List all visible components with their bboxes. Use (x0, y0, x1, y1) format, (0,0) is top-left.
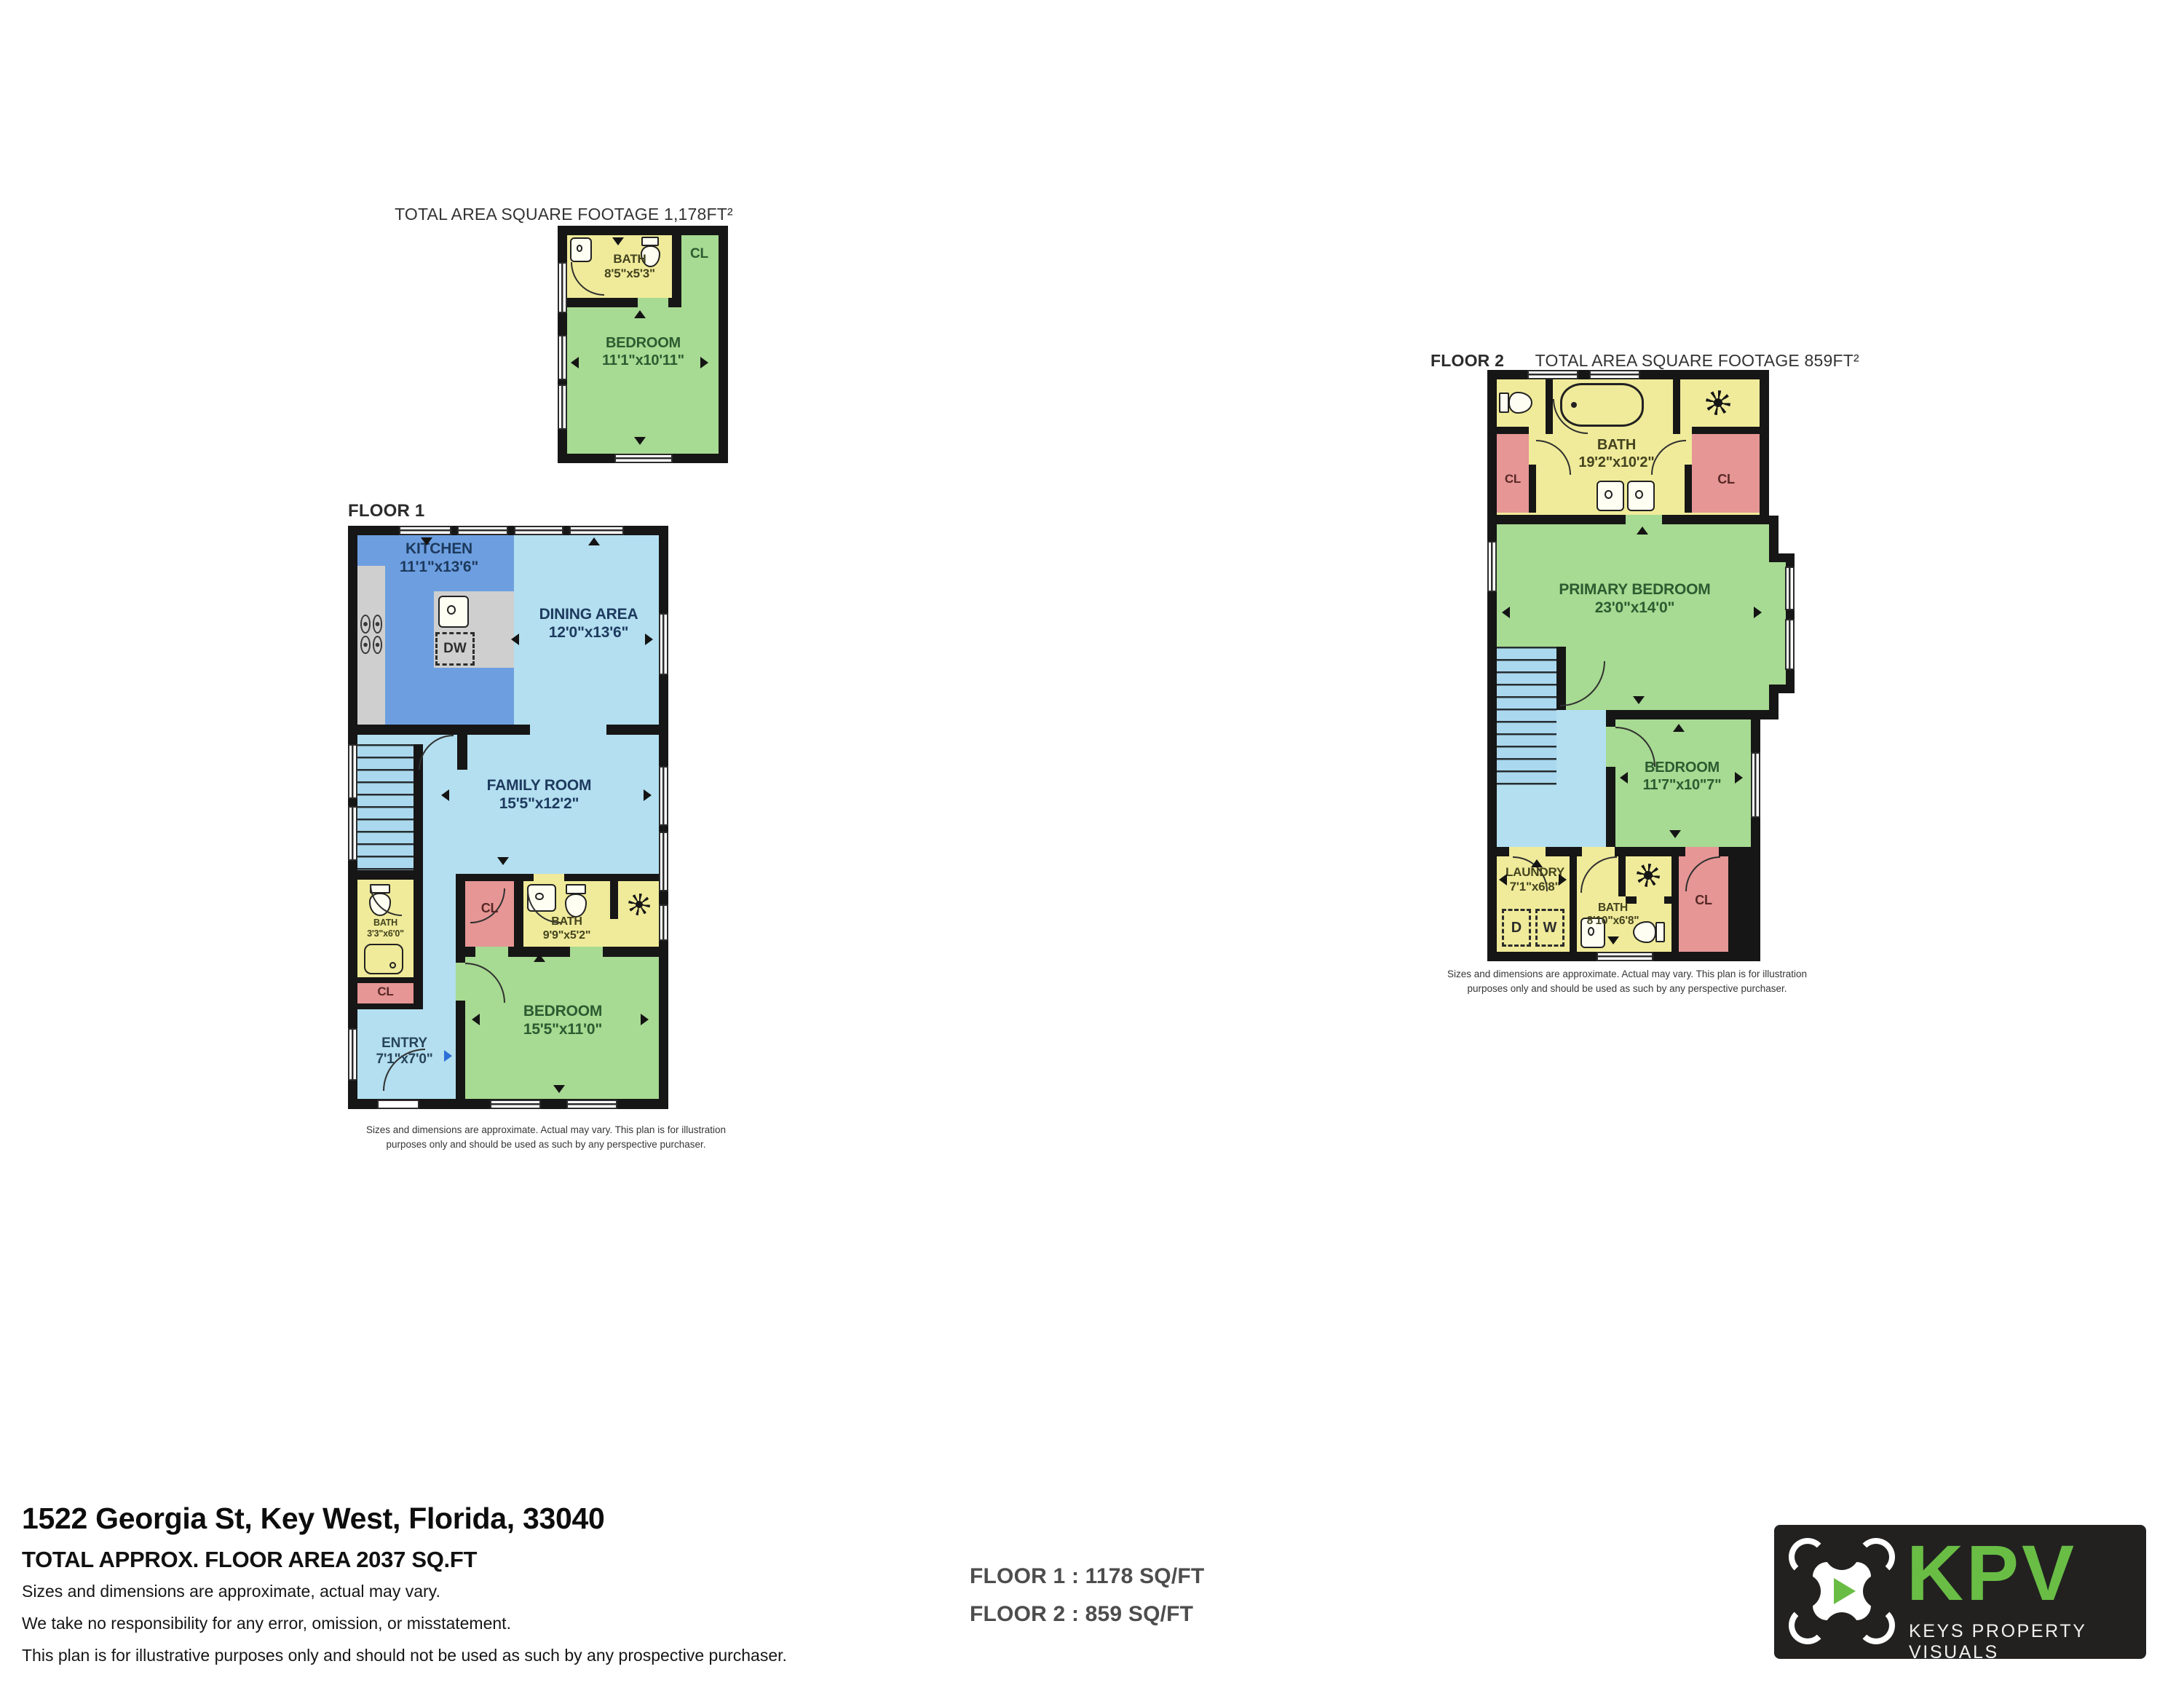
room-name: BATH (551, 915, 582, 929)
floor2-area-summary: FLOOR 2 : 859 SQ/FT (970, 1602, 1193, 1627)
dishwasher-box: DW (435, 632, 475, 666)
door-arrow-icon (634, 437, 646, 445)
door-arrow-icon (700, 357, 708, 368)
drone-body-notch (1863, 1574, 1898, 1609)
door-arrow-icon (1673, 724, 1685, 732)
family-room-label: FAMILY ROOM 15'5"x12'2" (457, 777, 621, 813)
room-dims: 11'1"x10'11" (602, 352, 684, 370)
window (659, 613, 668, 675)
window (558, 262, 567, 313)
unit-bedroom-label: BEDROOM 11'1"x10'11" (579, 335, 707, 369)
window (659, 904, 668, 941)
ceiling-fan-icon (628, 894, 650, 915)
floorplan-sheet: { "palette": { "wall": "#161616", "bath_… (0, 0, 2184, 1688)
room-name: ENTRY (381, 1036, 427, 1052)
wall (348, 1003, 423, 1009)
wall (606, 725, 668, 735)
logo-abbr: KPV (1907, 1534, 2077, 1612)
drone-body-notch (1824, 1612, 1859, 1647)
primary-bump-area (1769, 562, 1786, 685)
door-opening (456, 963, 465, 1001)
room-dims: 8'10"x6'8" (1587, 915, 1639, 928)
door-opening (1685, 847, 1719, 856)
window (1487, 541, 1497, 592)
window (1785, 619, 1795, 670)
unit-closet-label: CL (680, 246, 719, 262)
window (457, 526, 508, 535)
rotor-icon (1789, 1606, 1827, 1644)
door-opening (1626, 515, 1662, 524)
room-name: CL (690, 246, 708, 262)
window (1751, 752, 1760, 818)
footer-note: Sizes and dimensions are approximate, ac… (22, 1582, 440, 1601)
wall (1497, 427, 1529, 434)
bath2-label: BATH 8'10"x6'8" (1575, 902, 1651, 928)
closet-bottom-label: CL (1679, 893, 1728, 908)
door-arrow-icon (588, 537, 600, 545)
door-arrow-icon (421, 537, 432, 545)
dining-label: DINING AREA 12'0"x13'6" (521, 606, 656, 642)
room-name: CL (1505, 472, 1521, 486)
dryer-box: D (1502, 909, 1531, 947)
bedroom-label: BEDROOM 15'5"x11'0" (486, 1003, 639, 1039)
sink-icon (1627, 481, 1655, 511)
wall (1692, 427, 1760, 434)
unit-bath-label: BATH 8'5"x5'3" (590, 252, 670, 281)
door-arrow-icon (441, 789, 449, 801)
room-dims: 11'7"x10"7" (1643, 777, 1722, 794)
drone-body-notch (1824, 1535, 1859, 1570)
door-opening (534, 874, 564, 881)
floor1-area-summary: FLOOR 1 : 1178 SQ/FT (970, 1564, 1204, 1589)
floor1-disclaimer: Sizes and dimensions are approximate. Ac… (335, 1123, 757, 1152)
sink-icon (1597, 481, 1624, 511)
total-floor-area: TOTAL APPROX. FLOOR AREA 2037 SQ.FT (22, 1547, 477, 1573)
door-arrow-icon (1559, 874, 1567, 886)
window (348, 744, 357, 799)
stairs (1497, 647, 1556, 785)
door-arrow-icon (1754, 607, 1762, 618)
room-dims: 15'5"x11'0" (523, 1021, 602, 1039)
door-arrow-icon (645, 634, 653, 645)
door-arrow-icon (612, 237, 624, 245)
toilet-icon (1499, 390, 1532, 415)
room-name: BEDROOM (523, 1003, 602, 1021)
ceiling-fan-icon (1637, 864, 1660, 887)
floor2-title-row: FLOOR 2 TOTAL AREA SQUARE FOOTAGE 859FT² (1431, 351, 1859, 371)
property-address: 1522 Georgia St, Key West, Florida, 3304… (22, 1502, 604, 1536)
door-arrow-icon (1669, 830, 1681, 838)
unit-plan-title: TOTAL AREA SQUARE FOOTAGE 1,178FT² (391, 205, 737, 224)
hallway-area (423, 874, 456, 1010)
window (566, 1100, 617, 1109)
window (1527, 370, 1578, 379)
disclaimer-line: purposes only and should be used as such… (1467, 983, 1787, 994)
door-arrow-icon (634, 310, 646, 318)
door-opening (638, 298, 668, 307)
closet-left-label: CL (1497, 472, 1529, 486)
door-arrow-icon (553, 1085, 565, 1093)
window (348, 1028, 357, 1081)
door-arrow-icon (1607, 936, 1619, 944)
door-arrow-icon (534, 954, 545, 962)
room-name: CL (1695, 893, 1712, 908)
door-arrow-icon (1531, 859, 1543, 867)
wall (348, 725, 417, 735)
door-opening (475, 947, 508, 957)
door-arrow-icon (1735, 772, 1743, 784)
door-arrow-icon (497, 857, 509, 865)
door-opening (570, 947, 603, 957)
door-opening (1582, 847, 1615, 856)
ceiling-fan-icon (1706, 390, 1730, 415)
room-dims: 8'5"x5'3" (604, 267, 655, 281)
door-arrow-icon (1499, 874, 1507, 886)
room-dims: 15'5"x12'2" (499, 795, 579, 813)
floor2-title: TOTAL AREA SQUARE FOOTAGE 859FT² (1535, 351, 1859, 370)
washer-box: W (1535, 909, 1564, 947)
disclaimer-line: Sizes and dimensions are approximate. Ac… (366, 1124, 726, 1135)
drone-body-notch (1786, 1574, 1821, 1609)
stairs (357, 744, 414, 870)
door-arrow-icon (1502, 607, 1510, 618)
drone-icon (1787, 1537, 1896, 1646)
window (659, 766, 668, 826)
room-dims: 11'1"x13'6" (400, 559, 478, 577)
door-opening (1509, 847, 1546, 856)
footer-note: This plan is for illustrative purposes o… (22, 1646, 787, 1665)
window (614, 454, 673, 463)
room-name: BATH (1598, 902, 1628, 915)
room-name: DINING AREA (539, 606, 638, 624)
toilet-icon (563, 884, 588, 918)
room-dims: 23'0"x14'0" (1595, 599, 1674, 618)
kitchen-label: KITCHEN 11'1"x13'6" (366, 540, 512, 577)
room-name: CL (1717, 472, 1735, 487)
floor1-plan: DW KITCHEN 11'1"x13'6" DINING AREA (348, 526, 668, 1109)
wall (457, 735, 467, 770)
window (1589, 370, 1640, 379)
window (348, 806, 357, 861)
room-name: LAUNDRY (1506, 865, 1564, 880)
window (1597, 952, 1653, 961)
door-arrow-icon (1620, 772, 1628, 784)
door-arrow-icon (1637, 526, 1648, 535)
floor2-disclaimer: Sizes and dimensions are approximate. Ac… (1423, 967, 1831, 996)
window (514, 526, 563, 535)
room-name: BEDROOM (1645, 760, 1720, 777)
primary-bedroom-label: PRIMARY BEDROOM 23'0"x14'0" (1542, 581, 1728, 618)
wall (1546, 379, 1553, 434)
unit-plan: BATH 8'5"x5'3" CL BEDROOM 11'1"x10'11" (558, 226, 728, 463)
room-dims: 19'2"x10'2" (1578, 454, 1654, 472)
bath-mid-label: BATH 9'9"x5'2" (523, 915, 610, 943)
floor1-label: FLOOR 1 (348, 501, 424, 521)
closet-mid-label: CL (465, 901, 514, 916)
disclaimer-line: Sizes and dimensions are approximate. Ac… (1447, 969, 1807, 979)
bedroom2-label: BEDROOM 11'7"x10"7" (1615, 760, 1749, 794)
open-passage (530, 725, 606, 735)
room-dims: 7'1"x7'0" (376, 1052, 432, 1068)
room-dims: 7'1"x6'8" (1510, 880, 1561, 894)
door-opening (610, 919, 618, 947)
window (399, 526, 451, 535)
wall (348, 977, 423, 983)
floor2-label: FLOOR 2 (1431, 351, 1504, 370)
door-arrow-icon (1633, 696, 1645, 704)
door-arrow-icon (644, 789, 652, 801)
wall (348, 870, 423, 880)
door-arrow-icon (511, 634, 519, 645)
dryer-label: D (1511, 920, 1522, 936)
floor2-plan: D W BATH 19'2"x10'2" CL CL PRIMARY BEDRO… (1487, 370, 1795, 961)
room-name: BATH (1597, 437, 1636, 454)
washer-label: W (1543, 920, 1557, 936)
window (1785, 567, 1795, 610)
window (659, 832, 668, 891)
bath-top-label: BATH 19'2"x10'2" (1553, 437, 1680, 471)
room-dims: 3'3"x6'0" (367, 928, 404, 939)
room-name: PRIMARY BEDROOM (1559, 581, 1710, 599)
door-arrow-icon (472, 1014, 480, 1025)
logo-name: KEYS PROPERTY VISUALS (1909, 1621, 2146, 1663)
window (490, 1100, 541, 1109)
room-dims: 9'9"x5'2" (543, 929, 590, 943)
room-name: BATH (613, 252, 646, 267)
bath-small-label: BATH 3'3"x6'0" (357, 918, 414, 939)
room-name: CL (481, 901, 499, 916)
door-arrow-icon (444, 1050, 452, 1062)
window (569, 526, 624, 535)
wall (1673, 379, 1680, 434)
shower-icon (364, 944, 403, 974)
footer-note: We take no responsibility for any error,… (22, 1614, 511, 1633)
window (558, 335, 567, 380)
play-icon (1834, 1578, 1856, 1604)
room-name: CL (377, 985, 393, 999)
rotor-icon (1857, 1606, 1895, 1644)
closet-hall-label: CL (357, 985, 414, 999)
room-name: FAMILY ROOM (487, 777, 592, 795)
room-dims: 12'0"x13'6" (549, 624, 628, 642)
closet-right-label: CL (1701, 472, 1752, 487)
entry-label: ENTRY 7'1"x7'0" (359, 1036, 450, 1068)
wall (1618, 856, 1626, 896)
room-name: BATH (373, 918, 397, 928)
rotor-icon (1789, 1538, 1827, 1576)
sink-icon (438, 596, 469, 628)
door-arrow-icon (641, 1014, 649, 1025)
door-arrow-icon (571, 357, 579, 368)
sink-icon (570, 237, 592, 262)
wall (457, 725, 530, 735)
stove-icon (359, 613, 384, 655)
disclaimer-line: purposes only and should be used as such… (386, 1139, 705, 1150)
rotor-icon (1857, 1538, 1895, 1576)
wall (1529, 465, 1536, 513)
entry-door-threshold (377, 1100, 419, 1109)
room-name: KITCHEN (405, 540, 472, 559)
kpv-logo: KPV KEYS PROPERTY VISUALS (1774, 1525, 2146, 1659)
window (558, 384, 567, 430)
dishwasher-label: DW (443, 641, 467, 657)
room-name: BEDROOM (606, 335, 681, 352)
